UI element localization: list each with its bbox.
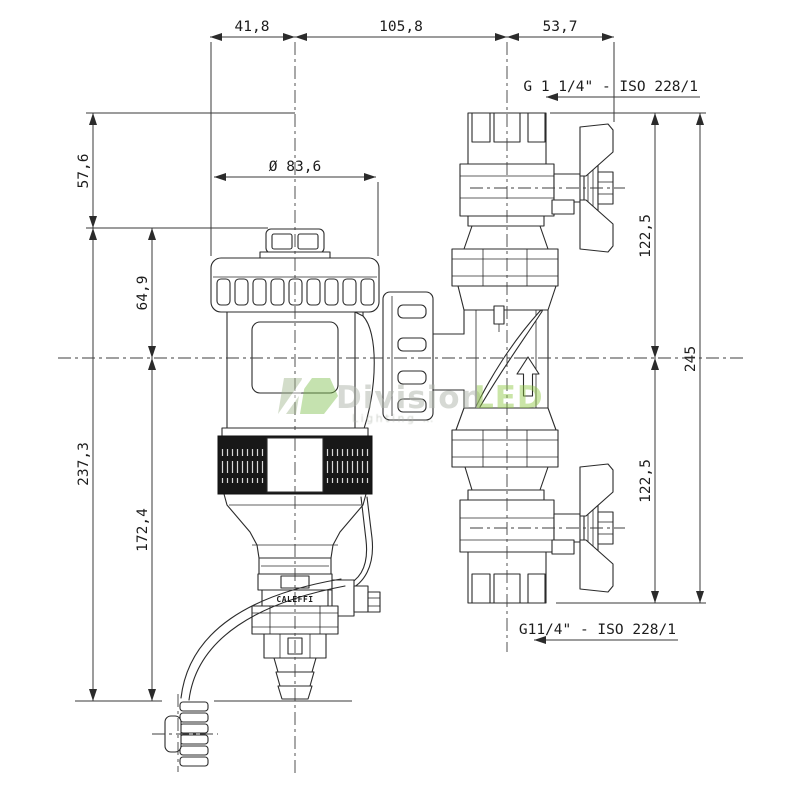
- dim-245: 245: [683, 346, 699, 372]
- lower-filter-section: [152, 494, 380, 772]
- watermark-brand-gray: Division: [336, 380, 484, 416]
- caleffi-brand-text: CALEFFI: [276, 595, 313, 604]
- seat-pin: [494, 306, 504, 324]
- magnet-knob: [152, 694, 218, 772]
- technical-drawing-canvas: 41,8 105,8 53,7 Ø 83,6 57,6 64,9 237,3 1…: [0, 0, 800, 800]
- dim-122-5-bottom: 122,5: [638, 459, 654, 503]
- dim-57-6: 57,6: [76, 154, 92, 189]
- watermark-tagline: Lighting …: [352, 412, 436, 425]
- thread-label-bottom: G11/4" - ISO 228/1: [519, 622, 676, 638]
- thread-label-top: G 1 1/4" - ISO 228/1: [523, 79, 698, 95]
- black-knurled-ring: [218, 436, 372, 494]
- dim-122-5-top: 122,5: [638, 214, 654, 258]
- dim-53-7: 53,7: [543, 19, 578, 35]
- union-nut-bottom: [452, 430, 558, 467]
- dim-41-8: 41,8: [235, 19, 270, 35]
- top-dimensions: 41,8 105,8 53,7: [210, 19, 614, 256]
- dim-64-9: 64,9: [135, 276, 151, 311]
- dim-105-8: 105,8: [379, 19, 423, 35]
- dim-237-3: 237,3: [76, 442, 92, 486]
- dim-172-4: 172,4: [135, 508, 151, 552]
- watermark-brand-green: LED: [474, 380, 544, 416]
- union-nut-top: [452, 249, 558, 286]
- ball-valve-bottom: [452, 430, 613, 603]
- ball-valve-top: [452, 113, 613, 286]
